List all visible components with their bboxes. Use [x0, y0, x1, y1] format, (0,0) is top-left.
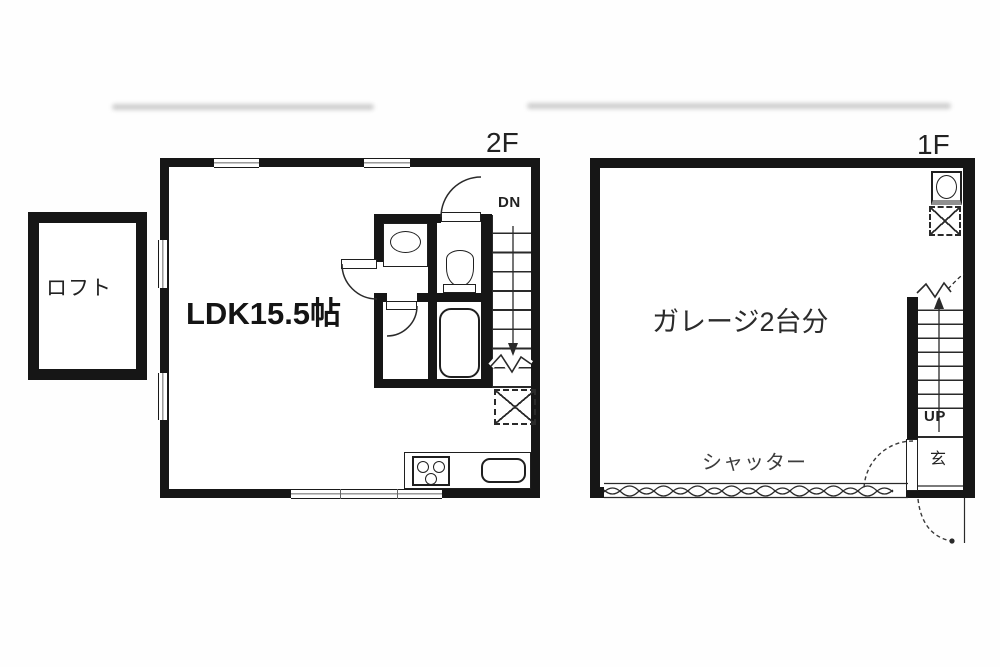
garage-wall-corner [590, 487, 604, 498]
loft-room: ロフト [28, 212, 147, 380]
door-stop-dot [949, 538, 954, 543]
stairs-dn-label: DN [498, 195, 521, 210]
toilet-base [443, 284, 476, 293]
window [364, 158, 410, 168]
washbasin-icon [390, 231, 421, 253]
entry-divider [918, 436, 963, 438]
door-leaf [386, 301, 417, 310]
stove-icon [412, 456, 450, 486]
window-mullion [340, 489, 341, 499]
bathroom-wall [428, 293, 437, 388]
bathroom-wall [374, 300, 383, 388]
second-floor-label: 2F [486, 129, 519, 157]
stairs-up-label: UP [924, 409, 946, 424]
bathroom-wall [374, 214, 383, 262]
loft-label: ロフト [46, 278, 112, 299]
ldk-room-label: LDK15.5帖 [186, 298, 341, 329]
window [158, 373, 168, 420]
void-x-box [494, 389, 536, 425]
void-x-box [929, 206, 961, 236]
door-leaf [906, 439, 918, 491]
staircase-2f [492, 215, 531, 388]
burner [417, 461, 429, 473]
sink-icon [481, 458, 526, 483]
window [214, 158, 259, 168]
entry-wall-bottom [906, 490, 975, 498]
entry-label: 玄 [930, 452, 946, 468]
first-floor-label: 1F [917, 131, 950, 159]
toilet-stall [931, 171, 962, 205]
shutter-label: シャッター [702, 453, 807, 473]
redacted-text-smudge [527, 103, 951, 109]
toilet-icon [936, 175, 957, 199]
window-sliding [291, 489, 442, 499]
floorplan-canvas: 2F ロフト LDK15.5帖 DN 1F [0, 0, 1000, 667]
garage-wall-left [590, 158, 600, 498]
window-mullion [397, 489, 398, 499]
toilet-icon [446, 250, 474, 286]
door-leaf [441, 212, 481, 222]
bathtub-icon [439, 308, 480, 378]
garage-wall-top [590, 158, 975, 168]
staircase-1f [918, 297, 963, 410]
window [158, 240, 168, 288]
entrance-door-arc [918, 499, 951, 541]
garage-wall-right [963, 158, 975, 498]
bathroom-wall [428, 214, 437, 302]
burner [425, 473, 437, 485]
redacted-text-smudge [112, 104, 374, 110]
stair-wall [907, 297, 918, 440]
door-leaf [341, 259, 377, 269]
garage-room-label: ガレージ2台分 [652, 309, 828, 336]
burner [433, 461, 445, 473]
